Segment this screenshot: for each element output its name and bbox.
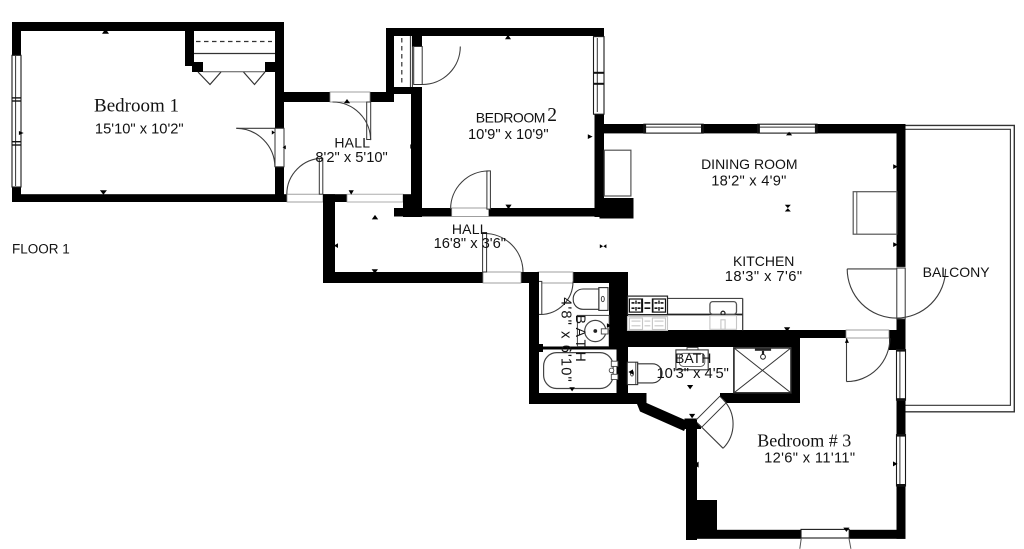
svg-text:HALL: HALL [334, 135, 370, 151]
svg-text:DINING ROOM: DINING ROOM [701, 156, 797, 172]
svg-text:Bedroom # 3: Bedroom # 3 [757, 430, 851, 450]
svg-text:HALL: HALL [452, 221, 488, 237]
svg-text:12'6" x 11'11": 12'6" x 11'11" [764, 451, 855, 467]
svg-text:8'2" x 5'10": 8'2" x 5'10" [315, 150, 387, 166]
svg-text:18'2" x 4'9": 18'2" x 4'9" [711, 173, 786, 189]
svg-text:BATH: BATH [675, 350, 711, 366]
svg-text:10'9" x 10'9": 10'9" x 10'9" [468, 127, 549, 143]
svg-text:FLOOR 1: FLOOR 1 [12, 241, 70, 256]
svg-text:BALCONY: BALCONY [923, 264, 991, 280]
svg-text:4'8" x 6'10": 4'8" x 6'10" [558, 297, 574, 383]
svg-text:KITCHEN: KITCHEN [733, 253, 794, 269]
svg-text:15'10" x 10'2": 15'10" x 10'2" [95, 121, 184, 137]
svg-text:18'3" x 7'6": 18'3" x 7'6" [725, 269, 803, 285]
svg-text:10'3" x 4'5": 10'3" x 4'5" [657, 366, 729, 382]
svg-text:BATH: BATH [573, 315, 589, 366]
svg-text:Bedroom 1: Bedroom 1 [94, 96, 179, 117]
svg-text:16'8" x 3'6": 16'8" x 3'6" [434, 236, 506, 252]
